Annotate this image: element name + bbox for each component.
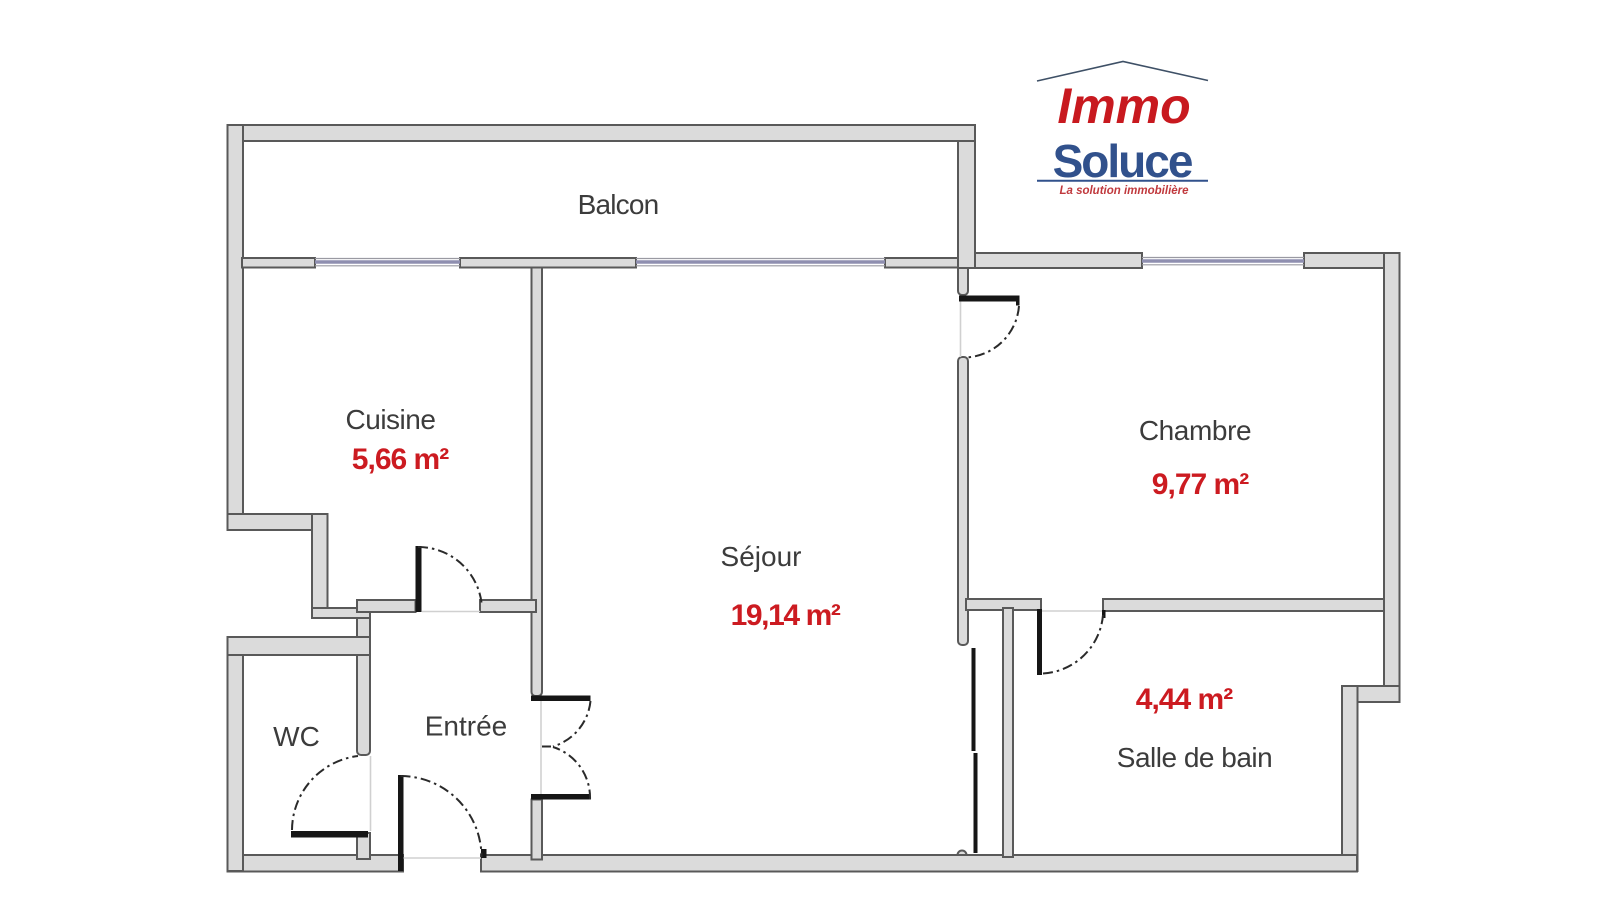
svg-text:Salle de bain: Salle de bain (1117, 742, 1272, 773)
svg-text:WC: WC (273, 721, 320, 752)
svg-text:Balcon: Balcon (578, 189, 659, 220)
svg-text:Séjour: Séjour (721, 541, 802, 572)
svg-text:19,14 m²: 19,14 m² (731, 599, 841, 632)
svg-text:5,66 m²: 5,66 m² (352, 443, 449, 476)
svg-text:Chambre: Chambre (1139, 415, 1251, 446)
svg-text:La solution immobilière: La solution immobilière (1059, 185, 1189, 197)
svg-text:Immo: Immo (1057, 78, 1190, 134)
svg-text:Soluce: Soluce (1053, 135, 1193, 187)
svg-text:Cuisine: Cuisine (346, 404, 436, 435)
svg-text:Entrée: Entrée (425, 711, 508, 742)
svg-text:9,77 m²: 9,77 m² (1152, 468, 1249, 501)
svg-text:4,44 m²: 4,44 m² (1136, 683, 1233, 716)
